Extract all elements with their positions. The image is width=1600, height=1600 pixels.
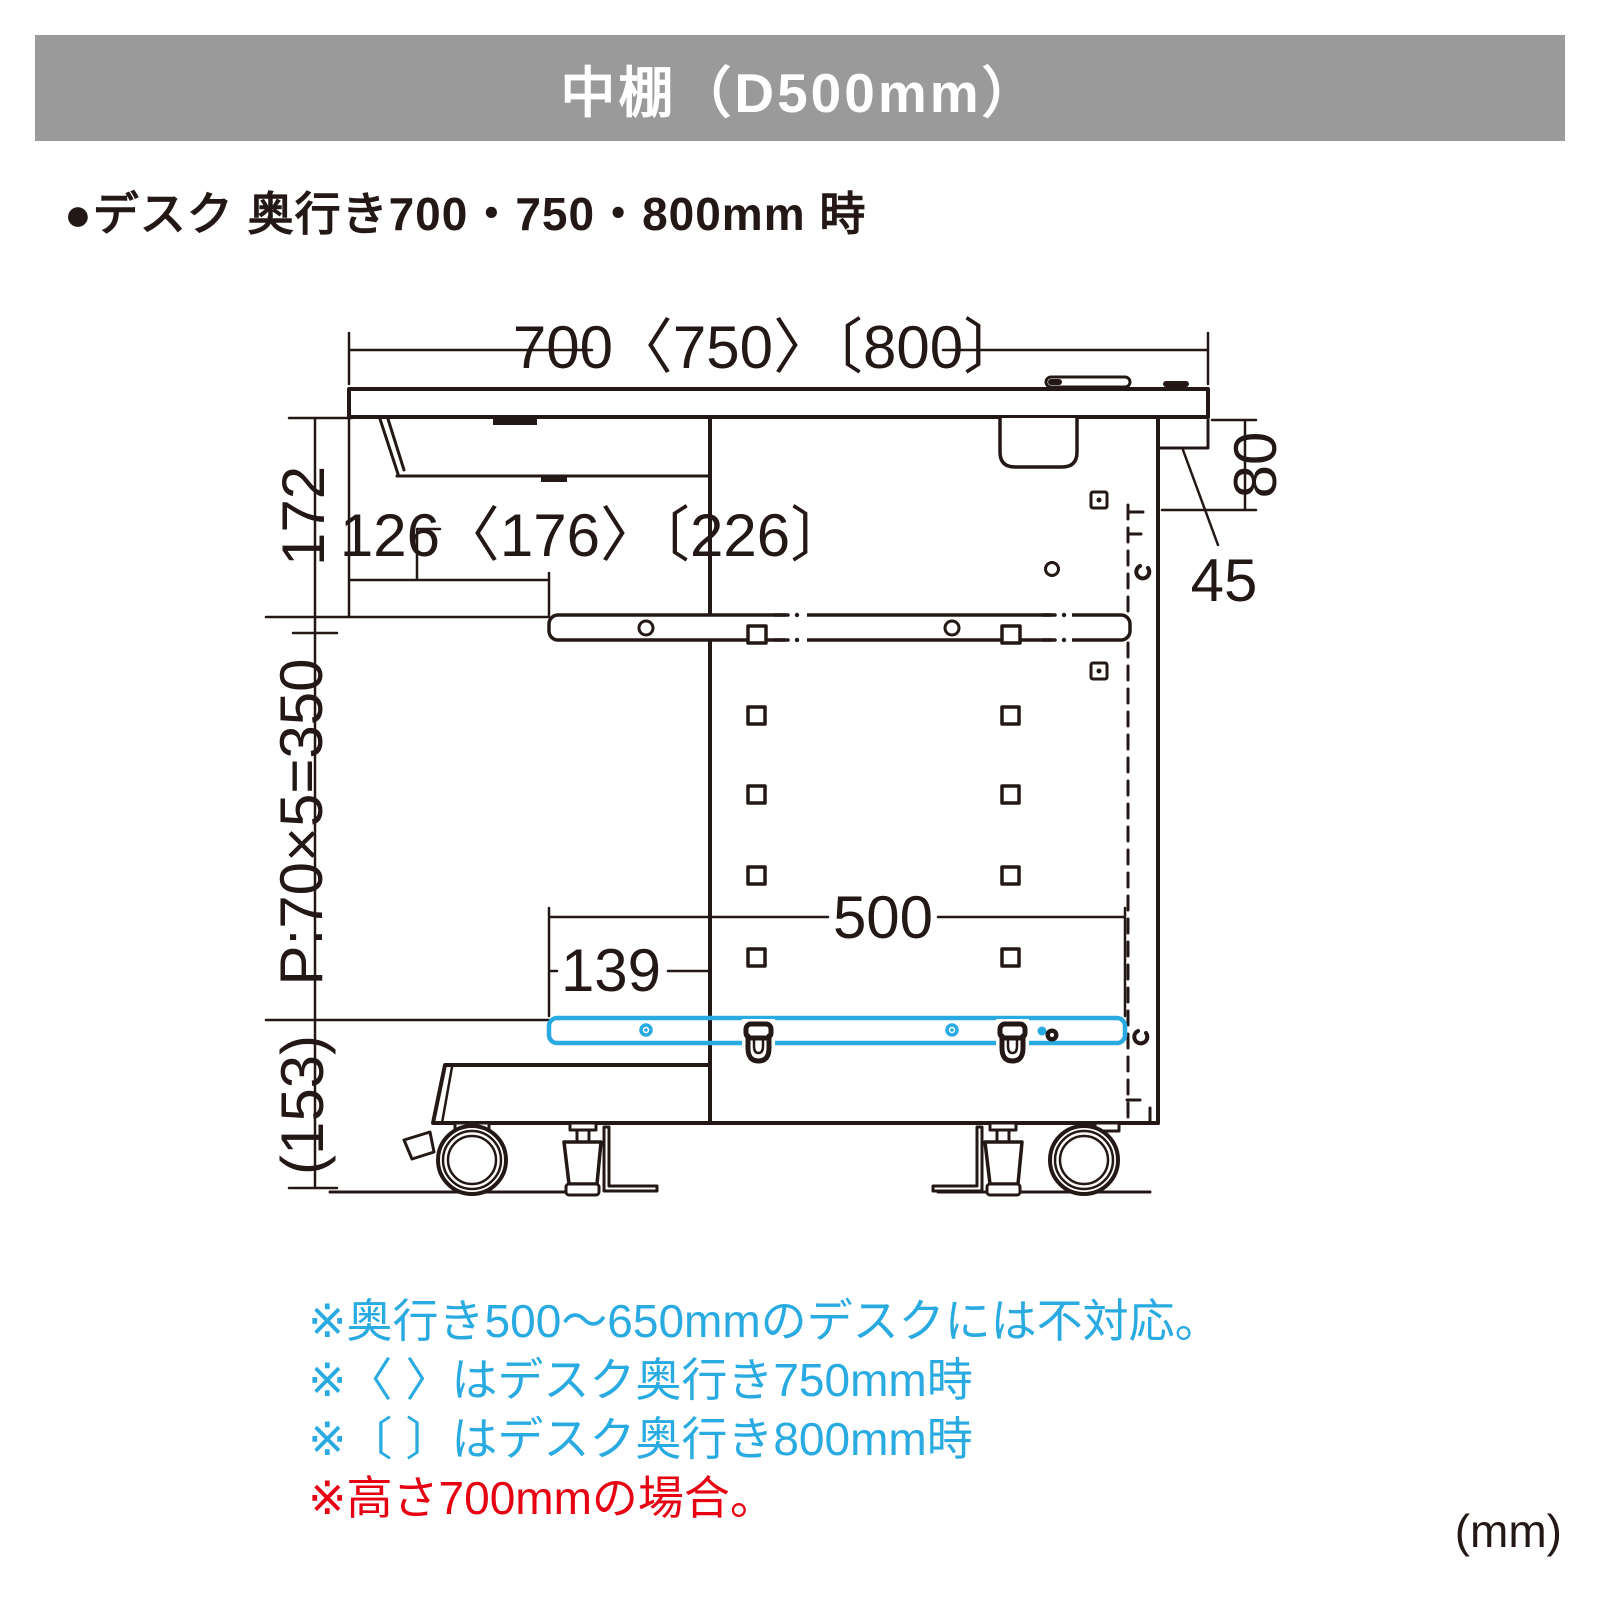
dim-shelf-front-offset: 139 <box>561 937 661 1004</box>
shelf-clip-left <box>742 1019 775 1066</box>
unit-label: (mm) <box>1400 1504 1562 1558</box>
dim-floor-clearance: (153) <box>269 1035 336 1175</box>
leveler-front <box>564 1123 657 1195</box>
note-line: ※奥行き500〜650mmのデスクには不対応。 <box>308 1292 1221 1351</box>
shelf-support-bar <box>549 610 1130 645</box>
footnotes: ※奥行き500〜650mmのデスクには不対応。 ※〈 〉はデスク奥行き750mm… <box>308 1292 1221 1528</box>
dim-rear-clearance: 80 <box>1222 432 1289 499</box>
dimension-labels: 700〈750〉〔800〕 172 126〈176〉〔226〕 80 45 P:… <box>268 314 1289 1175</box>
note-line: ※高さ700mmの場合。 <box>308 1469 1221 1528</box>
caster-rear <box>1050 1123 1119 1194</box>
dim-shelf-depth: 500 <box>833 884 933 951</box>
caster-brake-lever <box>404 1132 434 1159</box>
dim-hole-pitch: P:70×5=350 <box>268 659 335 986</box>
under-desk-tray <box>380 418 710 482</box>
leveler-rear <box>933 1123 1022 1195</box>
floor-bracket-rear <box>933 1127 982 1191</box>
shelf-clip-right <box>996 1019 1029 1066</box>
rear-hook-bracket <box>1000 418 1077 467</box>
fitting-mark <box>1136 566 1149 578</box>
dim-tray-inset: 126〈176〉〔226〕 <box>340 502 850 569</box>
dim-rear-bracket: 45 <box>1191 547 1258 614</box>
middle-shelf-rail-highlight <box>549 1018 1147 1043</box>
dim-desk-depth: 700〈750〉〔800〕 <box>513 314 1023 381</box>
dim-top-to-shelf-bar: 172 <box>270 466 337 566</box>
note-line: ※〈 〉はデスク奥行き750mm時 <box>308 1351 1221 1410</box>
base-pedestal <box>433 1065 1158 1123</box>
note-line: ※〔 〕はデスク奥行き800mm時 <box>308 1410 1221 1469</box>
caster-front <box>404 1123 506 1194</box>
desk-top <box>349 377 1208 417</box>
floor-bracket-front <box>604 1127 657 1191</box>
